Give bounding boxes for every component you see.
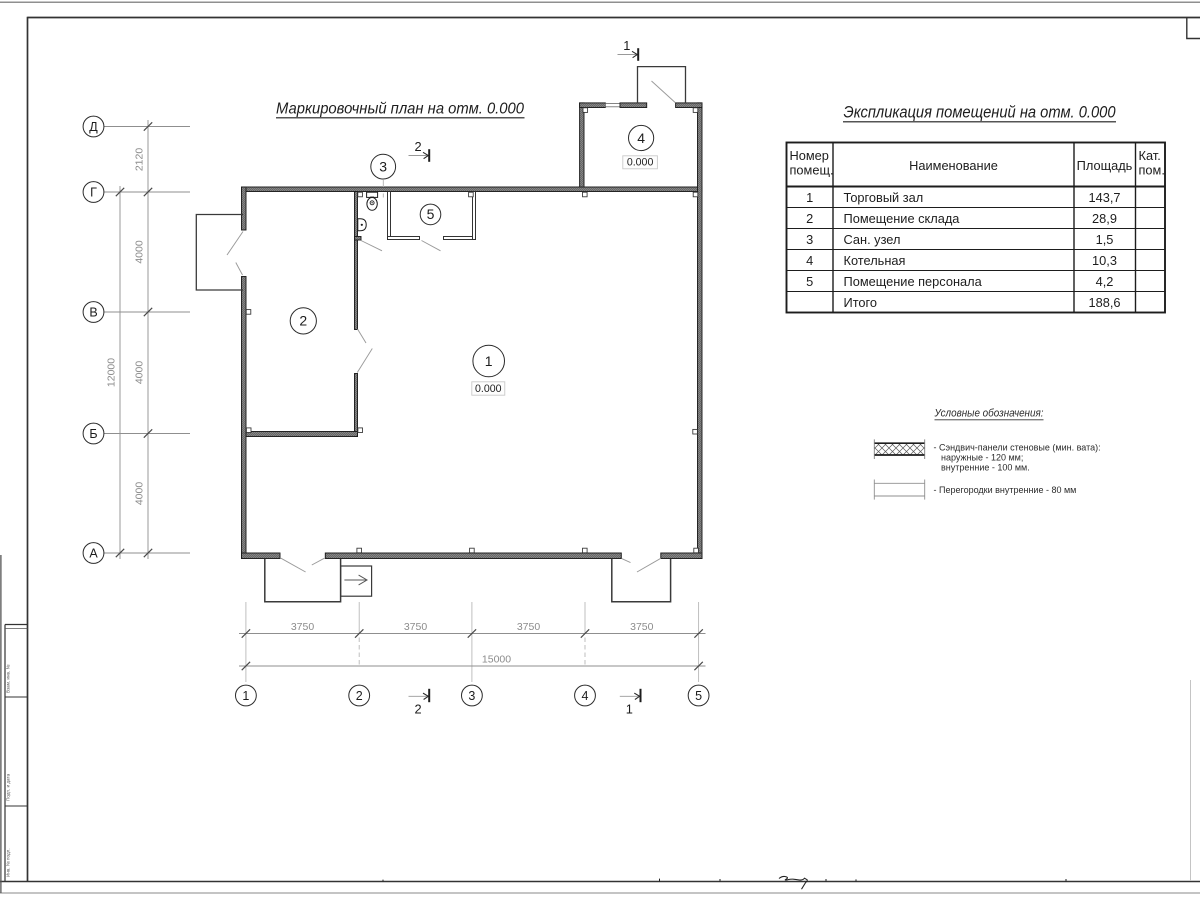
svg-text:Взам. инв. №: Взам. инв. №: [5, 664, 10, 693]
svg-text:3750: 3750: [404, 621, 428, 633]
svg-text:5: 5: [695, 689, 702, 703]
svg-text:Котельная: Котельная: [844, 253, 906, 268]
svg-text:3: 3: [379, 158, 387, 174]
svg-text:2: 2: [806, 211, 813, 226]
svg-text:3: 3: [806, 232, 813, 247]
svg-text:Наименование: Наименование: [909, 158, 998, 173]
svg-text:помещ.: помещ.: [790, 163, 834, 178]
svg-text:Площадь: Площадь: [1077, 158, 1133, 173]
svg-text:3750: 3750: [630, 621, 654, 633]
svg-text:4000: 4000: [134, 240, 146, 264]
svg-text:2: 2: [356, 689, 363, 703]
svg-text:Д: Д: [89, 120, 98, 134]
svg-text:Помещение персонала: Помещение персонала: [844, 274, 983, 289]
svg-text:2: 2: [414, 139, 421, 154]
svg-text:4: 4: [582, 689, 589, 703]
svg-text:Экспликация помещений на отм.: Экспликация помещений на отм. 0.000: [844, 104, 1116, 122]
svg-text:2: 2: [299, 313, 307, 329]
svg-text:5: 5: [806, 274, 813, 289]
svg-text:1: 1: [242, 689, 249, 703]
svg-text:Торговый зал: Торговый зал: [844, 190, 924, 205]
svg-text:Инв. № подл.: Инв. № подл.: [5, 848, 10, 877]
svg-text:Г: Г: [90, 186, 97, 200]
svg-text:внутренние - 100 мм.: внутренние - 100 мм.: [941, 463, 1030, 473]
svg-text:28,9: 28,9: [1092, 211, 1117, 226]
svg-text:4000: 4000: [134, 482, 146, 506]
svg-text:3: 3: [468, 689, 475, 703]
svg-text:- Перегородки внутренние - 80: - Перегородки внутренние - 80 мм: [934, 485, 1077, 495]
svg-text:4,2: 4,2: [1096, 274, 1114, 289]
svg-text:15000: 15000: [482, 653, 511, 665]
svg-text:Сан. узел: Сан. узел: [844, 232, 901, 247]
svg-text:0.000: 0.000: [627, 157, 654, 169]
svg-text:143,7: 143,7: [1088, 190, 1120, 205]
svg-text:Номер: Номер: [790, 148, 829, 163]
svg-text:4000: 4000: [134, 361, 146, 385]
svg-text:2120: 2120: [134, 148, 146, 172]
svg-text:Помещение склада: Помещение склада: [844, 211, 961, 226]
svg-text:Подп. и дата: Подп. и дата: [5, 773, 10, 801]
svg-text:Б: Б: [89, 427, 97, 441]
svg-text:1: 1: [626, 701, 633, 716]
svg-text:наружные - 120 мм;: наружные - 120 мм;: [941, 452, 1023, 462]
svg-text:1,5: 1,5: [1096, 232, 1114, 247]
svg-text:Маркировочный план на отм. 0.0: Маркировочный план на отм. 0.000: [276, 101, 524, 118]
svg-text:Итого: Итого: [844, 295, 878, 310]
svg-text:2: 2: [414, 701, 421, 716]
svg-text:1: 1: [485, 353, 493, 369]
svg-text:1: 1: [623, 38, 630, 53]
svg-text:3750: 3750: [291, 621, 315, 633]
svg-text:- Сэндвич-панели стеновые (мин: - Сэндвич-панели стеновые (мин. вата):: [934, 442, 1101, 452]
svg-text:0.000: 0.000: [475, 383, 502, 395]
svg-text:5: 5: [427, 206, 435, 222]
svg-text:Условные обозначения:: Условные обозначения:: [934, 408, 1044, 420]
svg-text:пом.: пом.: [1139, 163, 1165, 178]
svg-text:188,6: 188,6: [1088, 295, 1120, 310]
svg-text:4: 4: [637, 130, 645, 146]
svg-text:4: 4: [806, 253, 813, 268]
svg-text:Кат.: Кат.: [1139, 148, 1161, 163]
svg-text:1: 1: [806, 190, 813, 205]
svg-text:12000: 12000: [106, 358, 118, 387]
svg-text:В: В: [89, 306, 97, 320]
svg-text:3750: 3750: [517, 621, 541, 633]
svg-text:10,3: 10,3: [1092, 253, 1117, 268]
svg-text:А: А: [89, 547, 98, 561]
